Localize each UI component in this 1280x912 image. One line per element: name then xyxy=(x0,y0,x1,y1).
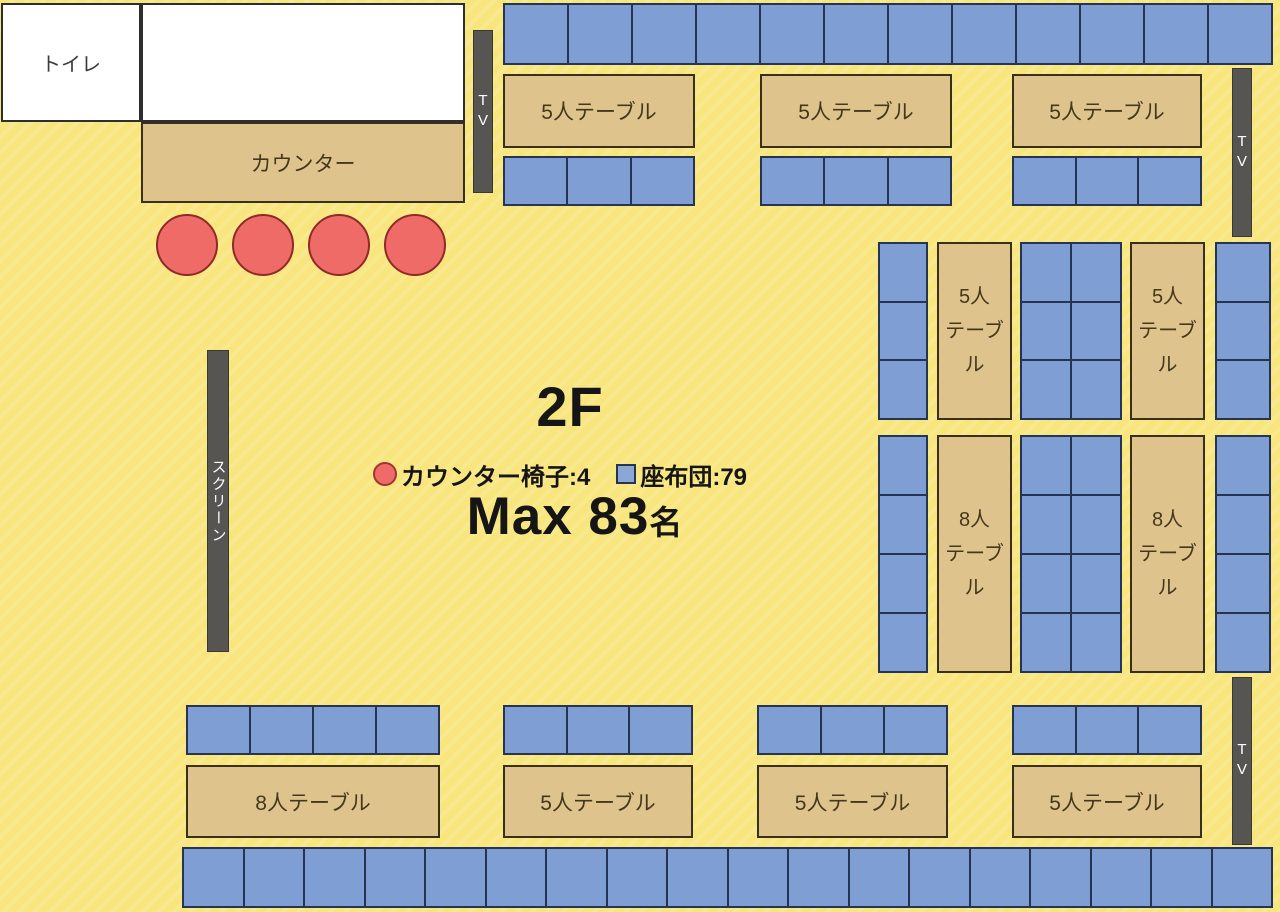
cushion xyxy=(909,848,970,907)
table-label: 5人テーブル xyxy=(795,787,910,817)
table-8p-bottom: 8人テーブル xyxy=(186,765,440,838)
cushion xyxy=(879,554,927,613)
table-label: 5人 xyxy=(959,280,990,314)
legend: カウンター椅子:4 座布団:79 xyxy=(330,460,790,488)
cushion xyxy=(824,157,887,205)
cushion xyxy=(1212,848,1273,907)
floor-title: 2F xyxy=(420,374,720,439)
cushion-row-bottom-3 xyxy=(1012,705,1202,755)
table-label: 8人 xyxy=(959,503,990,537)
cushion xyxy=(187,706,250,754)
cushion xyxy=(888,157,951,205)
floor-plan-2f: トイレ カウンター TV スクリーン 5人テーブル 5人テーブル 5人テーブル … xyxy=(0,0,1280,912)
screen-label: スクリーン xyxy=(208,459,229,544)
cushion xyxy=(1216,360,1270,419)
tv-icon: TV xyxy=(1232,68,1252,237)
counter-chair xyxy=(232,214,294,276)
table-5p-top-2: 5人テーブル xyxy=(760,74,952,148)
cushion xyxy=(1216,302,1270,361)
cushion-row-bottom-1 xyxy=(503,705,693,755)
cushion xyxy=(760,4,824,64)
cushion-col-r1-b xyxy=(1215,242,1271,420)
cushion xyxy=(1080,4,1144,64)
screen-icon: スクリーン xyxy=(207,350,229,652)
cushion xyxy=(1151,848,1212,907)
cushion-row-bottom-8p xyxy=(186,705,440,755)
cushion-row-top-2 xyxy=(760,156,952,206)
cushion-col-r1-a xyxy=(878,242,928,420)
cushion xyxy=(376,706,439,754)
cushion xyxy=(1021,436,1071,495)
table-5p-right-1: 5人 テーブル xyxy=(937,242,1012,420)
cushion xyxy=(758,706,821,754)
table-8p-right-1: 8人 テーブル xyxy=(937,435,1012,673)
cushion xyxy=(607,848,668,907)
cushion xyxy=(1071,243,1121,302)
cushion xyxy=(888,4,952,64)
cushion xyxy=(879,360,927,419)
cushion xyxy=(879,243,927,302)
table-5p-right-2: 5人 テーブル xyxy=(1130,242,1205,420)
cushion xyxy=(1076,706,1139,754)
cushion-strip-top xyxy=(503,3,1273,65)
cushion xyxy=(567,706,630,754)
cushion xyxy=(788,848,849,907)
table-label: 5人 xyxy=(1152,280,1183,314)
cushion xyxy=(183,848,244,907)
cushion xyxy=(1071,302,1121,361)
cushion xyxy=(1071,495,1121,554)
cushion xyxy=(1138,706,1201,754)
cushion xyxy=(504,706,567,754)
max-capacity-suffix: 名 xyxy=(649,504,683,541)
table-5p-bottom-3: 5人テーブル xyxy=(1012,765,1202,838)
cushion xyxy=(879,495,927,554)
table-label: テーブル xyxy=(939,314,1010,382)
cushion xyxy=(1021,302,1071,361)
cushion xyxy=(313,706,376,754)
cushion xyxy=(1013,157,1076,205)
cushion-row-bottom-2 xyxy=(757,705,948,755)
cushion xyxy=(1076,157,1139,205)
toilet-room: トイレ xyxy=(1,3,141,122)
cushion xyxy=(879,302,927,361)
cushion xyxy=(1071,436,1121,495)
cushion xyxy=(696,4,760,64)
table-5p-bottom-2: 5人テーブル xyxy=(757,765,948,838)
cushion xyxy=(884,706,947,754)
counter-chair-icon xyxy=(373,462,397,486)
cushion xyxy=(1216,613,1270,672)
cushion xyxy=(632,4,696,64)
cushion xyxy=(1071,554,1121,613)
table-label: 5人テーブル xyxy=(798,96,913,126)
counter-chairs xyxy=(156,214,446,276)
cushion xyxy=(1216,243,1270,302)
kitchen-area xyxy=(141,3,465,122)
cushion xyxy=(546,848,607,907)
max-capacity-value: Max 83 xyxy=(467,487,650,546)
table-label: 8人 xyxy=(1152,503,1183,537)
cushion xyxy=(970,848,1031,907)
cushion xyxy=(1021,554,1071,613)
tv-icon: TV xyxy=(473,30,493,193)
cushion xyxy=(879,613,927,672)
table-label: 5人テーブル xyxy=(540,787,655,817)
toilet-label: トイレ xyxy=(41,48,101,77)
cushion xyxy=(486,848,547,907)
counter-chair xyxy=(156,214,218,276)
cushion xyxy=(761,157,824,205)
cushion xyxy=(1216,495,1270,554)
cushion xyxy=(1216,554,1270,613)
table-label: 5人テーブル xyxy=(541,96,656,126)
cushion xyxy=(629,706,692,754)
counter: カウンター xyxy=(141,122,465,203)
table-label: 5人テーブル xyxy=(1049,787,1164,817)
cushion xyxy=(879,436,927,495)
tv-icon: TV xyxy=(1232,677,1252,845)
cushion xyxy=(1021,495,1071,554)
cushion xyxy=(1021,360,1071,419)
tv-label: TV xyxy=(1234,741,1251,781)
table-5p-top-1: 5人テーブル xyxy=(503,74,695,148)
cushion xyxy=(728,848,789,907)
cushion-grid-r1 xyxy=(1020,242,1122,420)
max-capacity: Max 83名 xyxy=(390,486,760,547)
table-5p-top-3: 5人テーブル xyxy=(1012,74,1202,148)
cushion xyxy=(1021,613,1071,672)
cushion xyxy=(250,706,313,754)
cushion-col-r2-b xyxy=(1215,435,1271,673)
cushion-col-r2-a xyxy=(878,435,928,673)
table-label: 8人テーブル xyxy=(255,787,370,817)
table-5p-bottom-1: 5人テーブル xyxy=(503,765,693,838)
cushion xyxy=(1013,706,1076,754)
cushion xyxy=(1216,436,1270,495)
counter-chair xyxy=(384,214,446,276)
cushion-grid-r2 xyxy=(1020,435,1122,673)
cushion xyxy=(952,4,1016,64)
cushion xyxy=(631,157,694,205)
cushion xyxy=(1138,157,1201,205)
cushion-row-top-1 xyxy=(503,156,695,206)
cushion xyxy=(1071,360,1121,419)
cushion xyxy=(304,848,365,907)
cushion-icon xyxy=(616,464,636,484)
cushion xyxy=(1091,848,1152,907)
table-label: テーブル xyxy=(1132,537,1203,605)
table-label: テーブル xyxy=(1132,314,1203,382)
cushion xyxy=(1030,848,1091,907)
table-label: 5人テーブル xyxy=(1049,96,1164,126)
counter-label: カウンター xyxy=(251,148,356,178)
tv-label: TV xyxy=(475,92,492,132)
cushion xyxy=(567,157,630,205)
cushion xyxy=(1021,243,1071,302)
cushion xyxy=(1071,613,1121,672)
cushion-row-top-3 xyxy=(1012,156,1202,206)
table-8p-right-2: 8人 テーブル xyxy=(1130,435,1205,673)
cushion xyxy=(1016,4,1080,64)
cushion xyxy=(568,4,632,64)
tv-label: TV xyxy=(1234,133,1251,173)
cushion xyxy=(244,848,305,907)
cushion xyxy=(849,848,910,907)
cushion xyxy=(504,4,568,64)
cushion xyxy=(1144,4,1208,64)
cushion xyxy=(365,848,426,907)
counter-chair xyxy=(308,214,370,276)
cushion xyxy=(504,157,567,205)
table-label: テーブル xyxy=(939,537,1010,605)
cushion xyxy=(667,848,728,907)
cushion xyxy=(425,848,486,907)
cushion-strip-bottom xyxy=(182,847,1273,908)
cushion xyxy=(824,4,888,64)
cushion xyxy=(821,706,884,754)
cushion xyxy=(1208,4,1272,64)
